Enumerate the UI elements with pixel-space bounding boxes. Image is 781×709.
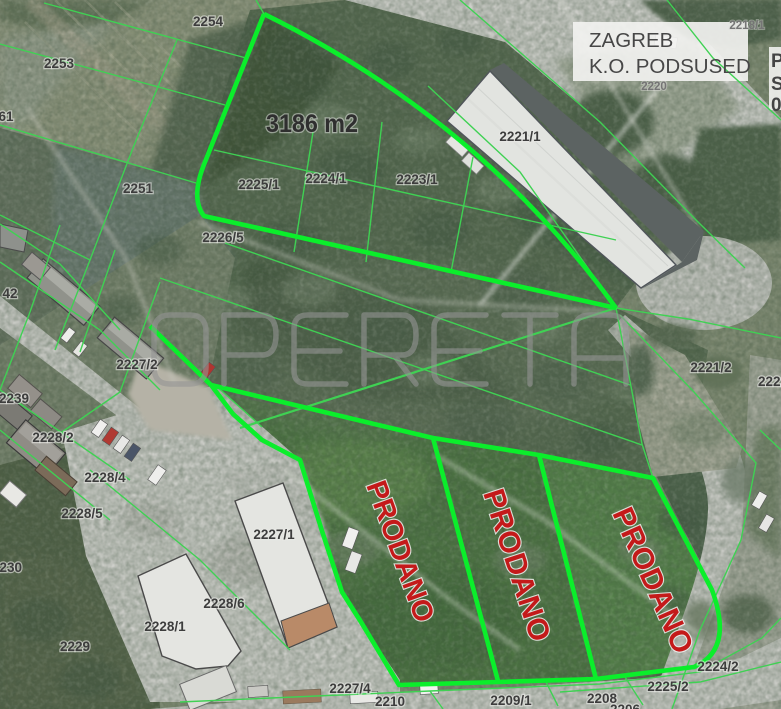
- svg-text:2251: 2251: [123, 181, 154, 196]
- svg-text:2218/1: 2218/1: [729, 20, 765, 32]
- svg-text:P: P: [771, 51, 781, 72]
- svg-text:2228/1: 2228/1: [144, 619, 186, 634]
- svg-text:ZAGREB: ZAGREB: [589, 29, 673, 52]
- svg-text:2226/5: 2226/5: [202, 230, 244, 245]
- svg-text:2227/1: 2227/1: [253, 527, 295, 542]
- svg-text:2254: 2254: [193, 14, 224, 29]
- svg-text:42: 42: [2, 286, 17, 301]
- svg-text:2222: 2222: [758, 374, 781, 389]
- svg-text:2230: 2230: [0, 560, 22, 575]
- svg-text:2223/1: 2223/1: [396, 172, 438, 187]
- svg-text:2224/2: 2224/2: [697, 659, 738, 674]
- svg-text:2239: 2239: [0, 391, 29, 406]
- svg-text:K.O. PODSUSED: K.O. PODSUSED: [589, 55, 751, 78]
- svg-text:2228/5: 2228/5: [61, 506, 103, 521]
- svg-text:2206: 2206: [610, 702, 641, 709]
- svg-text:S: S: [771, 74, 781, 95]
- svg-text:2224/1: 2224/1: [305, 171, 347, 186]
- svg-text:2229: 2229: [60, 639, 90, 654]
- svg-text:2210: 2210: [375, 694, 405, 709]
- svg-text:2225/1: 2225/1: [238, 177, 280, 192]
- svg-text:2228/2: 2228/2: [32, 430, 73, 445]
- svg-text:2221/1: 2221/1: [499, 129, 541, 144]
- svg-text:2227/2: 2227/2: [116, 357, 157, 372]
- svg-text:2220: 2220: [641, 81, 667, 93]
- svg-text:3186 m2: 3186 m2: [266, 110, 358, 138]
- svg-text:2225/2: 2225/2: [647, 679, 688, 694]
- svg-text:2253: 2253: [44, 56, 75, 71]
- svg-text:2209/1: 2209/1: [490, 693, 532, 708]
- svg-text:2221/2: 2221/2: [690, 360, 731, 375]
- svg-text:61: 61: [0, 109, 14, 124]
- svg-text:0: 0: [771, 95, 781, 116]
- svg-text:2227/4: 2227/4: [329, 681, 371, 696]
- svg-text:2228/4: 2228/4: [84, 470, 126, 485]
- svg-text:2228/6: 2228/6: [203, 596, 245, 611]
